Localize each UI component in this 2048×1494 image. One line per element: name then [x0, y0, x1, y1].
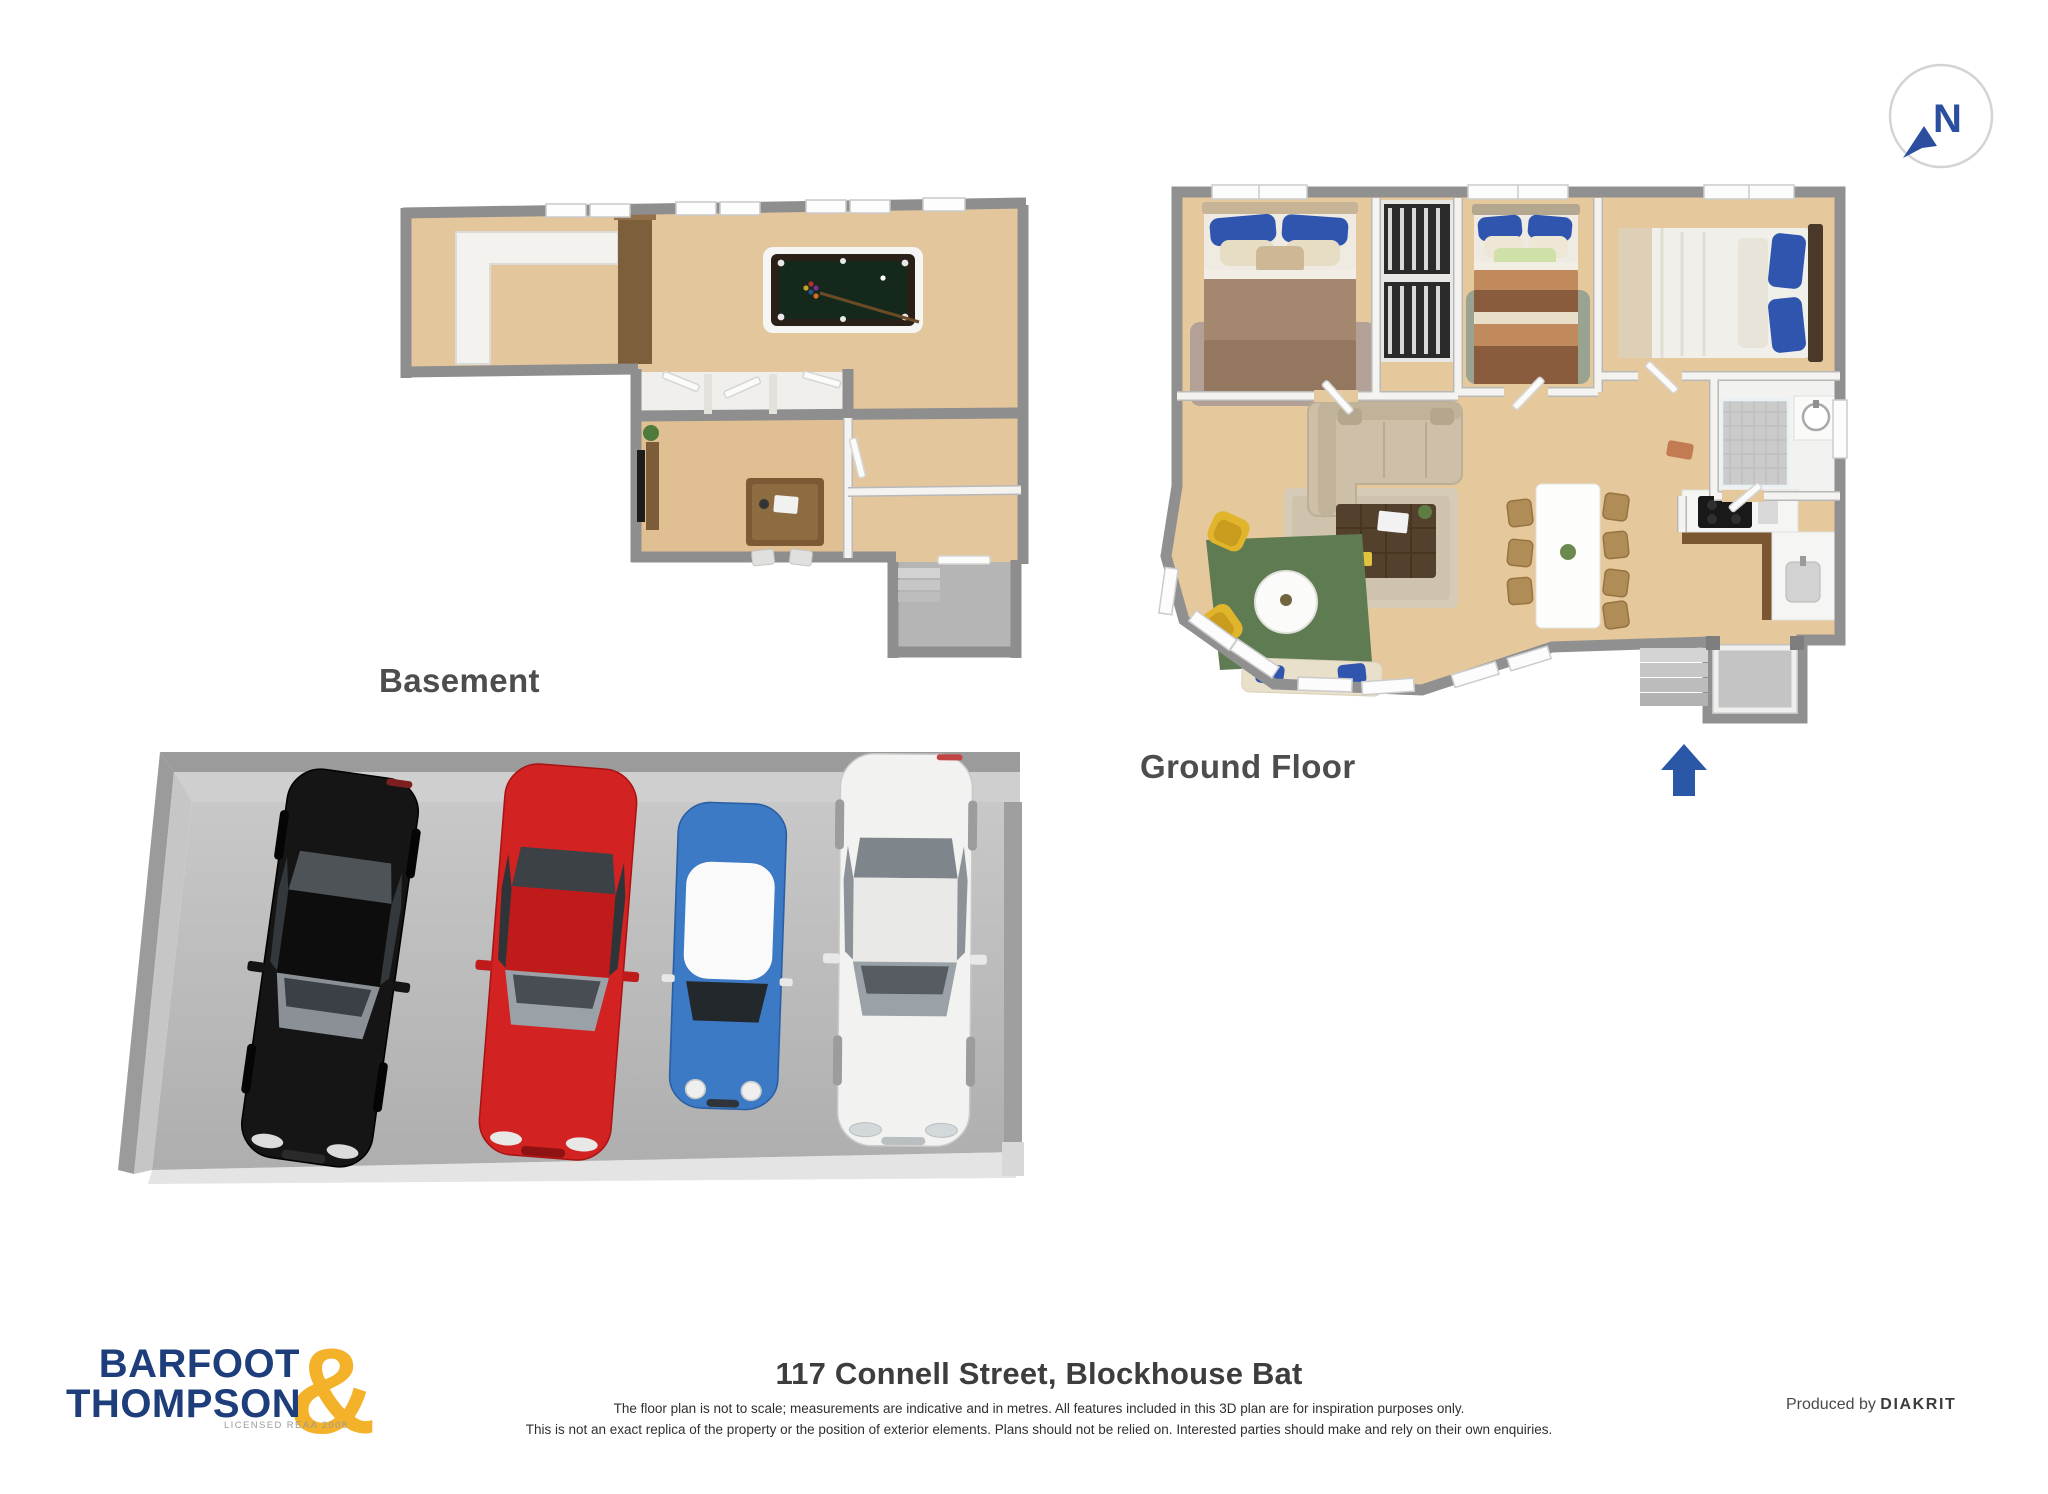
plant	[643, 425, 659, 441]
garage-plan	[118, 746, 1038, 1196]
tv	[637, 450, 645, 522]
ground-floorplan	[1122, 150, 1862, 810]
logo-ampersand: &	[288, 1330, 376, 1452]
logo-line1: BARFOOT	[66, 1344, 300, 1384]
white-car	[821, 753, 988, 1146]
kitchen-sink	[1786, 562, 1820, 602]
bedroom-2	[1466, 204, 1590, 384]
bed-bedroom2	[1472, 204, 1580, 384]
ground-floor-label: Ground Floor	[1140, 748, 1356, 786]
bed-master	[1202, 202, 1358, 396]
entrance-arrow-icon	[1661, 744, 1707, 796]
logo-line2: THOMPSON	[66, 1384, 300, 1424]
blue-mini-car	[657, 801, 799, 1111]
table-plant	[1560, 544, 1576, 560]
bedroom-3	[1618, 224, 1823, 362]
compass-north-label: N	[1933, 97, 1962, 141]
pool-table	[763, 247, 923, 333]
laptop	[773, 495, 798, 514]
chair	[751, 549, 774, 566]
basement-landing-steps	[898, 568, 940, 602]
basement-label: Basement	[379, 662, 540, 700]
basement-floorplan	[378, 152, 1048, 677]
produced-by-label: Produced by	[1786, 1396, 1876, 1413]
chair	[789, 549, 813, 567]
tv-console	[646, 442, 659, 530]
producer-brand: DIAKRIT	[1880, 1396, 1956, 1413]
bedroom-master	[1190, 202, 1376, 406]
compass: N	[1884, 59, 2002, 177]
logo-tagline: LICENSED REAA 2008	[224, 1420, 348, 1431]
entry-porch	[1706, 636, 1804, 714]
floorplan-sheet: N	[0, 0, 2048, 1494]
produced-by: Produced by DIAKRIT	[1786, 1396, 1956, 1414]
bathroom	[1714, 378, 1840, 496]
wardrobe	[1380, 200, 1454, 362]
entry-steps	[1640, 648, 1708, 706]
bed-bedroom3	[1618, 224, 1823, 362]
